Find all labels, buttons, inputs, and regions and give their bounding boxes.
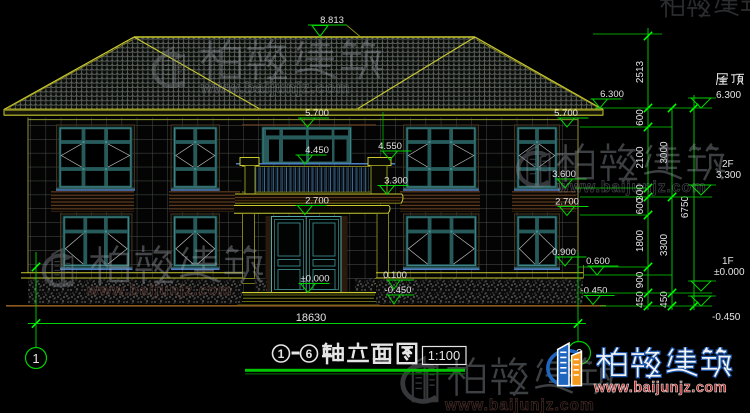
svg-text:4.550: 4.550	[378, 141, 402, 152]
svg-text:0.100: 0.100	[383, 270, 407, 281]
svg-text:www.baijunjz.com: www.baijunjz.com	[86, 282, 232, 299]
svg-text:1F: 1F	[722, 256, 734, 267]
svg-text:2.700: 2.700	[305, 196, 329, 207]
svg-text:www.baijunjz.com: www.baijunjz.com	[593, 380, 727, 396]
svg-text:5.700: 5.700	[305, 108, 329, 119]
svg-text:www.baijunjz.com: www.baijunjz.com	[444, 397, 595, 413]
svg-text:900: 900	[635, 271, 646, 288]
svg-text:www.baijunjz.com: www.baijunjz.com	[556, 179, 707, 196]
svg-text:5.700: 5.700	[554, 108, 578, 119]
svg-text:6750: 6750	[680, 195, 691, 218]
svg-text:2F: 2F	[722, 159, 734, 170]
svg-text:0.600: 0.600	[586, 256, 610, 267]
svg-text:±0.000: ±0.000	[301, 274, 330, 285]
svg-text:6: 6	[306, 347, 313, 361]
svg-text:6.300: 6.300	[600, 89, 624, 100]
svg-text:1: 1	[278, 347, 285, 361]
svg-text:8.813: 8.813	[320, 15, 344, 26]
svg-text:1:100: 1:100	[428, 348, 461, 363]
svg-text:600: 600	[635, 197, 646, 214]
svg-text:18630: 18630	[296, 312, 327, 324]
svg-text:2100: 2100	[635, 146, 646, 169]
svg-text:±0.000: ±0.000	[714, 267, 745, 278]
svg-text:4.450: 4.450	[305, 145, 329, 156]
svg-text:1800: 1800	[635, 229, 646, 252]
svg-text:-0.450: -0.450	[385, 285, 412, 296]
svg-text:-0.450: -0.450	[581, 286, 608, 297]
svg-text:3300: 3300	[659, 233, 670, 256]
svg-text:600: 600	[635, 109, 646, 126]
svg-text:3.300: 3.300	[384, 176, 408, 187]
svg-text:6.300: 6.300	[716, 90, 741, 101]
svg-text:2513: 2513	[635, 60, 646, 83]
svg-text:0.900: 0.900	[552, 247, 576, 258]
svg-text:www.baijunjz.com: www.baijunjz.com	[200, 80, 351, 97]
svg-text:2.700: 2.700	[555, 197, 579, 208]
svg-text:-0.450: -0.450	[712, 312, 741, 323]
svg-text:1: 1	[32, 351, 39, 366]
